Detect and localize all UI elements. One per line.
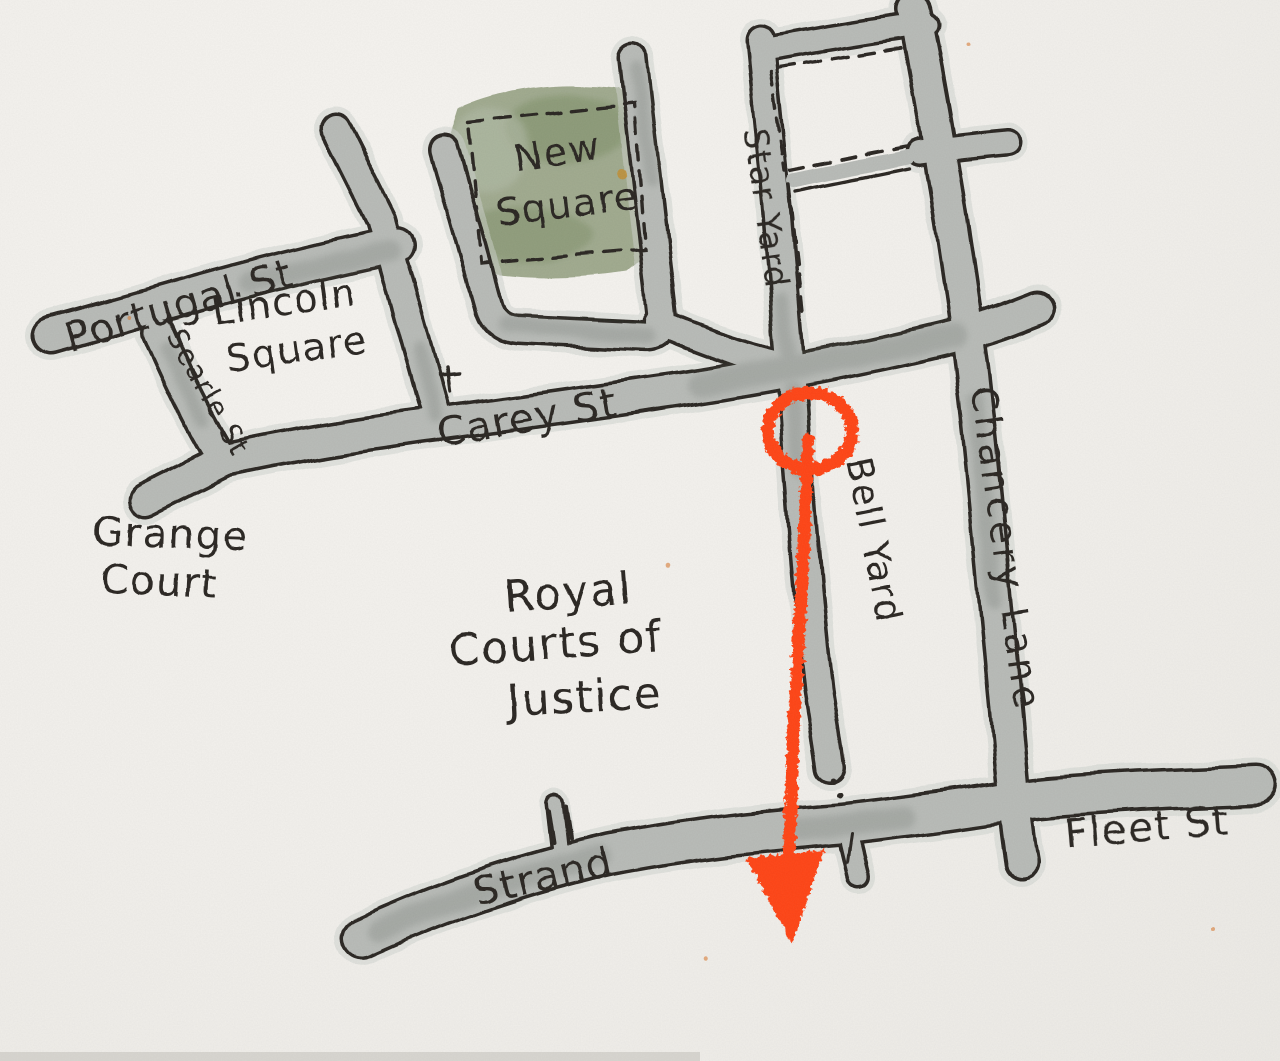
watercolor-map: Portugal St Searle St Lincoln Square New… [0, 0, 1280, 1061]
paper-bottom-edge [0, 1052, 700, 1061]
hand-drawn-map: Portugal St Searle St Lincoln Square New… [0, 0, 1280, 1061]
paper-grain-light [0, 0, 1280, 1061]
